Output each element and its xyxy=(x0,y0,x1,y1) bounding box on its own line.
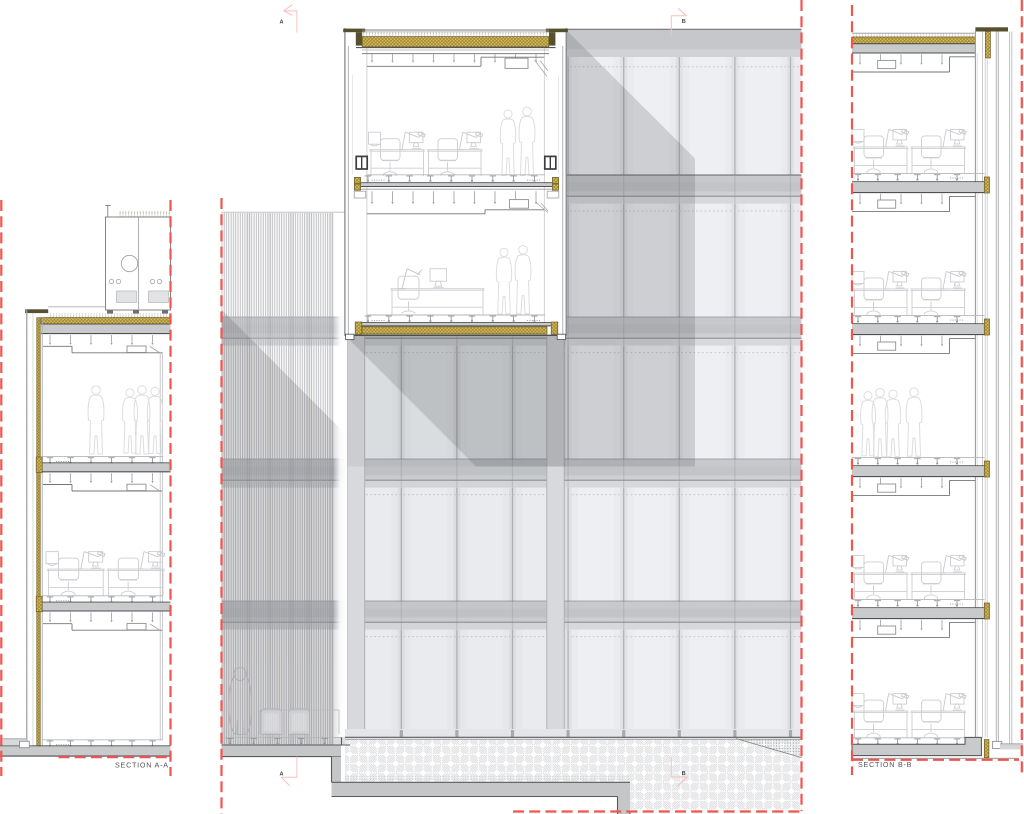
svg-text:SECTION A-A: SECTION A-A xyxy=(115,761,169,770)
svg-text:B: B xyxy=(682,771,686,777)
svg-text:A: A xyxy=(280,772,284,778)
svg-text:B: B xyxy=(682,19,686,25)
svg-text:SECTION B-B: SECTION B-B xyxy=(858,760,912,769)
svg-text:A: A xyxy=(280,20,284,26)
